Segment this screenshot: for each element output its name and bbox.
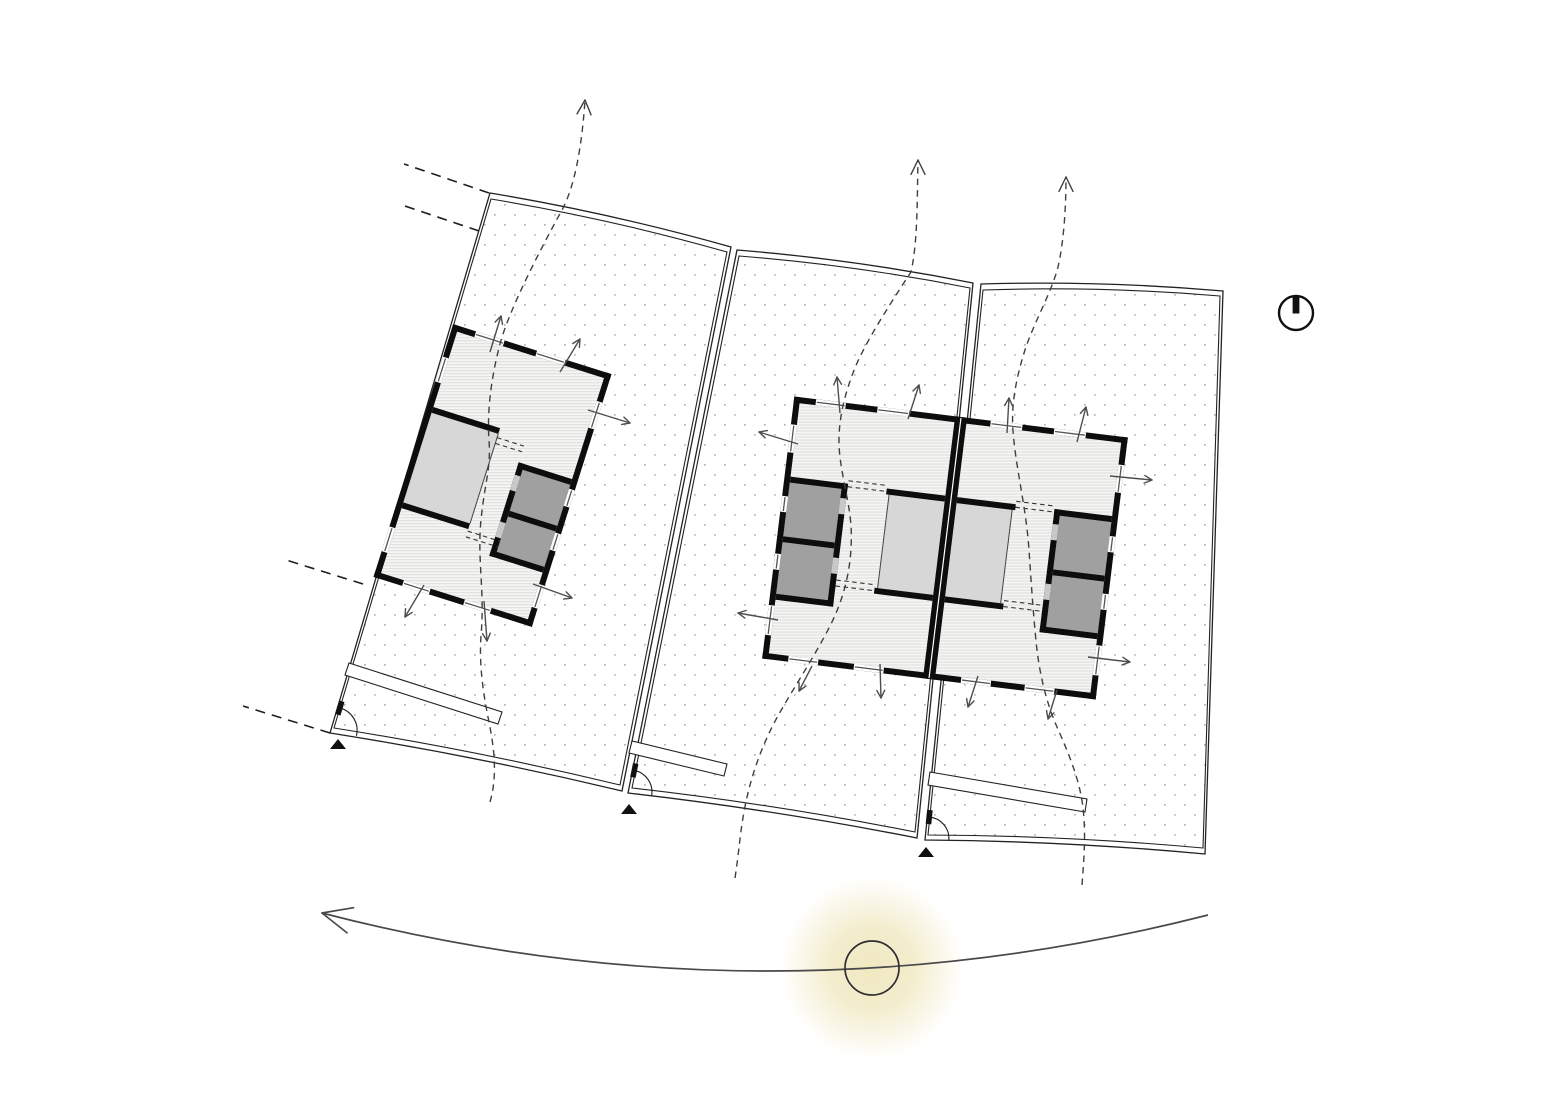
room-dark [1053,516,1111,576]
extension-line [286,560,363,584]
entrance-marker-triangle [918,847,934,857]
vent-arrow-shaft [880,664,881,698]
sun-path-line [322,913,1208,971]
sun-layer [322,876,1208,1060]
site-plan-svg [0,0,1556,1100]
north-needle-icon [1293,297,1300,314]
sun-path-arc [322,908,1208,971]
extension-line [404,164,489,193]
room-dark [783,483,841,543]
extension-line [243,706,330,733]
north-indicator [1279,296,1313,330]
site-plan-canvas [0,0,1556,1100]
entrance-marker-triangle [621,804,637,814]
entrance-marker-triangle [330,739,346,749]
building-2-duplex [762,397,1128,700]
room-dark [1046,575,1104,633]
room-dark [776,542,834,600]
extension-line [399,204,479,231]
